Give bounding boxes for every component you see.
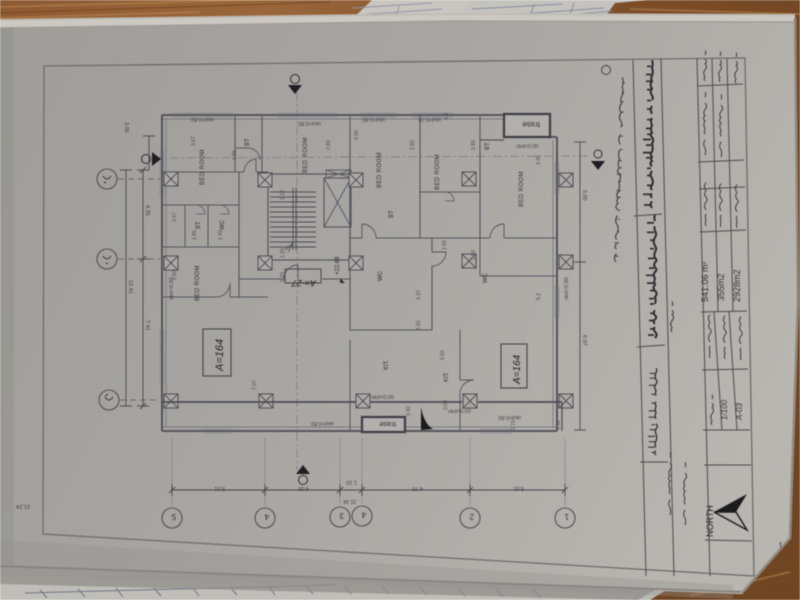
svg-text:2.85: 2.85 [410, 140, 416, 150]
svg-text:21 34: 21 34 [343, 498, 356, 504]
svg-text:3.10: 3.10 [416, 290, 422, 300]
svg-text:A=-27: A=-27 [291, 278, 317, 288]
svg-text:5.58: 5.58 [556, 420, 562, 430]
svg-text:2.79: 2.79 [511, 420, 517, 430]
svg-text:3.67: 3.67 [191, 136, 197, 146]
svg-text:okd=0.80: okd=0.80 [498, 414, 521, 420]
svg-text:6.97: 6.97 [581, 335, 587, 346]
svg-text:5.50: 5.50 [440, 350, 446, 360]
svg-text:7.07: 7.07 [252, 380, 258, 390]
svg-text:okd=0.00: okd=0.00 [371, 395, 394, 401]
svg-text:7.41: 7.41 [144, 320, 150, 331]
svg-text:2.85: 2.85 [471, 140, 477, 150]
svg-text:5: 5 [171, 512, 176, 521]
svg-text:4.00: 4.00 [354, 130, 360, 140]
svg-text:3.00: 3.00 [123, 122, 129, 133]
svg-text:BT: BT [485, 142, 491, 150]
svg-text:A=164: A=164 [214, 339, 226, 372]
svg-text:+22.68: +22.68 [335, 256, 341, 275]
svg-text:4.05: 4.05 [298, 485, 309, 491]
svg-text:BED ROOM: BED ROOM [200, 149, 206, 185]
svg-text:WC: WC [220, 219, 226, 230]
svg-text:okd=0.00: okd=0.00 [448, 409, 471, 415]
svg-text:3.00: 3.00 [443, 400, 449, 410]
svg-text:BT: BT [389, 210, 395, 218]
svg-text:2.80: 2.80 [172, 270, 178, 280]
svg-text:1.85: 1.85 [232, 150, 238, 160]
svg-text:NORTH: NORTH [705, 505, 715, 537]
svg-text:2.80: 2.80 [326, 140, 332, 150]
svg-text:4.35: 4.35 [144, 205, 150, 216]
svg-text:ckd=0.00: ckd=0.00 [516, 144, 538, 150]
svg-text:BED ROOM: BED ROOM [195, 265, 201, 301]
svg-text:5.00: 5.00 [581, 190, 587, 201]
svg-text:541.06 m²: 541.06 m² [700, 261, 710, 302]
svg-text:trase: trase [522, 120, 540, 129]
svg-text:BED ROOM: BED ROOM [377, 152, 383, 188]
svg-text:WC: WC [483, 272, 489, 283]
svg-text:1/100: 1/100 [720, 399, 729, 420]
svg-text:2: 2 [469, 512, 474, 521]
svg-text:3.67: 3.67 [172, 212, 178, 222]
svg-text:1.85: 1.85 [192, 230, 198, 240]
svg-text:4.75: 4.75 [412, 485, 423, 491]
svg-text:okd=0.80: okd=0.80 [191, 116, 214, 122]
svg-text:1.45: 1.45 [218, 230, 224, 240]
svg-text:okd=0.70: okd=0.70 [418, 116, 441, 122]
svg-text:KIT.: KIT. [384, 359, 390, 370]
svg-text:3: 3 [339, 511, 344, 520]
svg-text:12.41: 12.41 [127, 280, 133, 294]
svg-text:5.01: 5.01 [214, 485, 225, 491]
svg-text:21.24: 21.24 [16, 503, 30, 509]
svg-text:okd=0.80: okd=0.80 [564, 277, 570, 300]
svg-text:BED ROOM: BED ROOM [303, 137, 309, 173]
svg-text:1: 1 [564, 512, 569, 521]
svg-text:1.20: 1.20 [280, 248, 286, 258]
svg-text:okd=0.80: okd=0.80 [362, 116, 385, 122]
svg-text:trase: trase [379, 420, 396, 429]
svg-text:4.8: 4.8 [444, 113, 450, 120]
svg-text:1.20: 1.20 [280, 272, 286, 282]
svg-text:BT: BT [196, 221, 202, 229]
svg-text:1.50: 1.50 [416, 320, 422, 330]
svg-text:WC: WC [378, 270, 384, 281]
svg-text:A=164: A=164 [512, 354, 523, 385]
svg-text:3.30: 3.30 [406, 406, 412, 416]
svg-text:okd=0.80: okd=0.80 [298, 120, 321, 126]
svg-text:5.01: 5.01 [513, 485, 524, 491]
svg-text:2.50: 2.50 [471, 250, 477, 260]
svg-text:KIT.: KIT. [444, 371, 450, 382]
svg-text:4: 4 [264, 512, 269, 521]
svg-text:BED ROOM: BED ROOM [519, 171, 525, 207]
svg-text:2928m2: 2928m2 [732, 269, 742, 302]
svg-text:3.45: 3.45 [536, 155, 542, 165]
svg-text:1.10: 1.10 [346, 479, 357, 485]
svg-text:4: 4 [361, 510, 366, 519]
svg-text:BT: BT [245, 138, 251, 146]
svg-text:1.10: 1.10 [280, 190, 286, 200]
svg-text:1.50: 1.50 [442, 240, 448, 250]
svg-text:BED ROOM: BED ROOM [435, 154, 441, 190]
svg-text:A-03: A-03 [735, 403, 744, 421]
svg-text:okd=0.80: okd=0.80 [311, 420, 334, 426]
svg-text:5.2: 5.2 [536, 293, 542, 300]
svg-text:355m2: 355m2 [716, 273, 726, 301]
